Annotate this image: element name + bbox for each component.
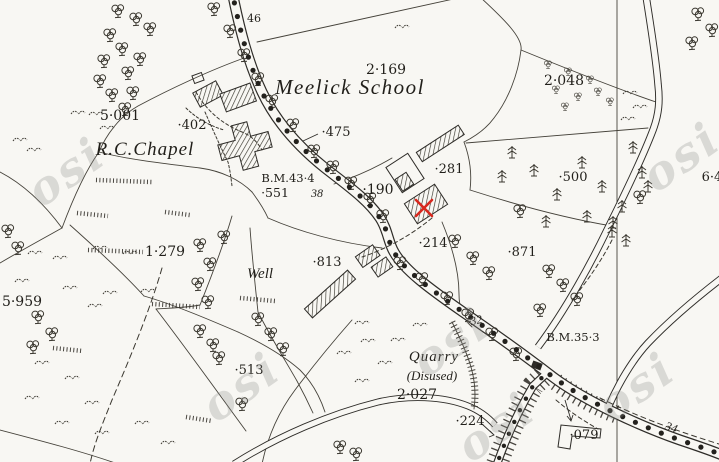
label-plot-2048: 2·048 bbox=[544, 73, 584, 89]
label-plot-813: ·813 bbox=[313, 255, 342, 270]
osi-watermark: osi bbox=[631, 111, 719, 203]
label-plot-079: ·079 bbox=[570, 428, 599, 443]
label-plot-214: ·214 bbox=[419, 236, 448, 251]
label-road-38: 38 bbox=[310, 186, 323, 200]
label-plot-475: ·475 bbox=[322, 125, 351, 140]
label-plot-2169: 2·169 bbox=[366, 62, 406, 78]
marked-building bbox=[404, 184, 447, 224]
label-benchmark-353: B.M.35·3 bbox=[546, 330, 599, 344]
label-meelick-school: Meelick School bbox=[274, 75, 425, 99]
label-plot-281: ·281 bbox=[435, 162, 464, 177]
label-plot-402: ·402 bbox=[178, 118, 207, 133]
label-rc-chapel: R.C.Chapel bbox=[95, 139, 195, 160]
historic-map-canvas[interactable]: Meelick School R.C.Chapel Well Quarry (D… bbox=[0, 0, 719, 462]
label-well: Well bbox=[247, 266, 273, 282]
label-plot-1279: 1·279 bbox=[145, 244, 185, 260]
label-plot-551: ·551 bbox=[261, 185, 289, 200]
label-plot-190: ·190 bbox=[362, 182, 393, 198]
osi-watermark: osi bbox=[191, 341, 290, 433]
label-plot-500: ·500 bbox=[559, 170, 588, 185]
label-benchmark-434: B.M.43·4 bbox=[261, 171, 314, 185]
osi-watermarks: osi osi osi osi osi osi bbox=[16, 111, 719, 462]
label-road-46: 46 bbox=[247, 12, 261, 25]
label-plot-5959: 5·959 bbox=[2, 294, 42, 310]
label-plot-2027: 2·027 bbox=[397, 387, 437, 403]
label-plot-871: ·871 bbox=[508, 245, 537, 260]
label-plot-5001: 5·001 bbox=[100, 108, 140, 124]
chapel-building bbox=[214, 117, 276, 175]
map-svg: Meelick School R.C.Chapel Well Quarry (D… bbox=[0, 0, 719, 462]
